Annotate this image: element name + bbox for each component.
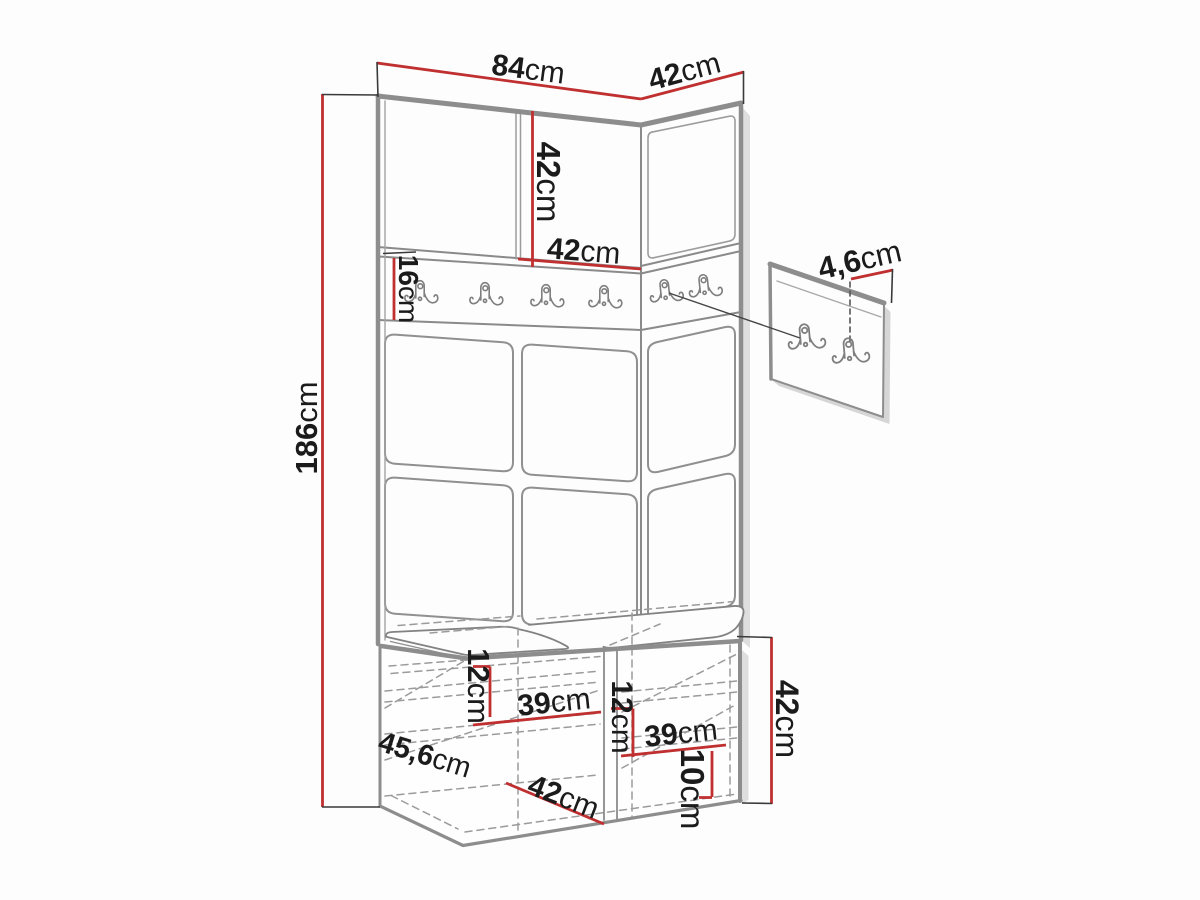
svg-text:16cm: 16cm — [393, 255, 424, 323]
svg-text:186cm: 186cm — [289, 381, 324, 474]
svg-text:42cm: 42cm — [769, 680, 805, 758]
svg-text:10cm: 10cm — [674, 749, 711, 830]
svg-text:12cm: 12cm — [605, 680, 638, 753]
svg-text:12cm: 12cm — [461, 648, 496, 724]
svg-text:42cm: 42cm — [530, 142, 567, 223]
svg-text:42cm: 42cm — [546, 232, 622, 271]
